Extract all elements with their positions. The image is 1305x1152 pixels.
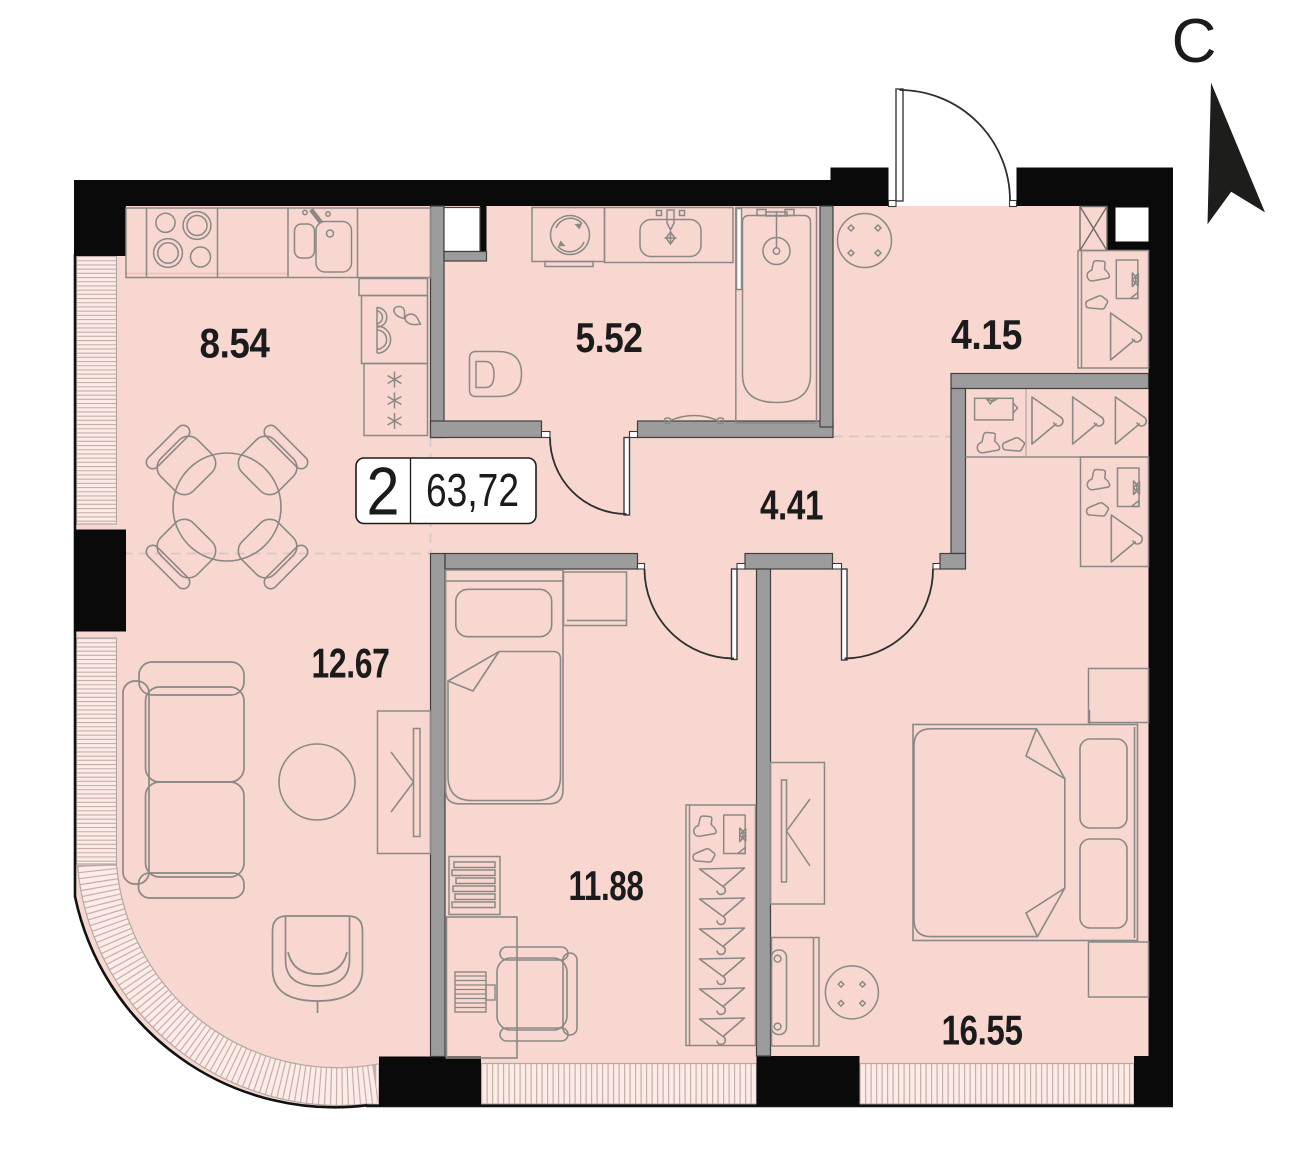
svg-text:2: 2 [367, 454, 400, 530]
svg-text:4.15: 4.15 [951, 311, 1022, 358]
svg-text:16.55: 16.55 [942, 1007, 1023, 1054]
svg-text:8.54: 8.54 [200, 320, 271, 367]
svg-text:4.41: 4.41 [760, 482, 823, 529]
svg-text:12.67: 12.67 [312, 640, 390, 687]
svg-text:5.52: 5.52 [576, 314, 643, 361]
svg-text:63,72: 63,72 [426, 464, 519, 516]
svg-text:С: С [1172, 7, 1217, 76]
svg-text:11.88: 11.88 [569, 862, 644, 909]
